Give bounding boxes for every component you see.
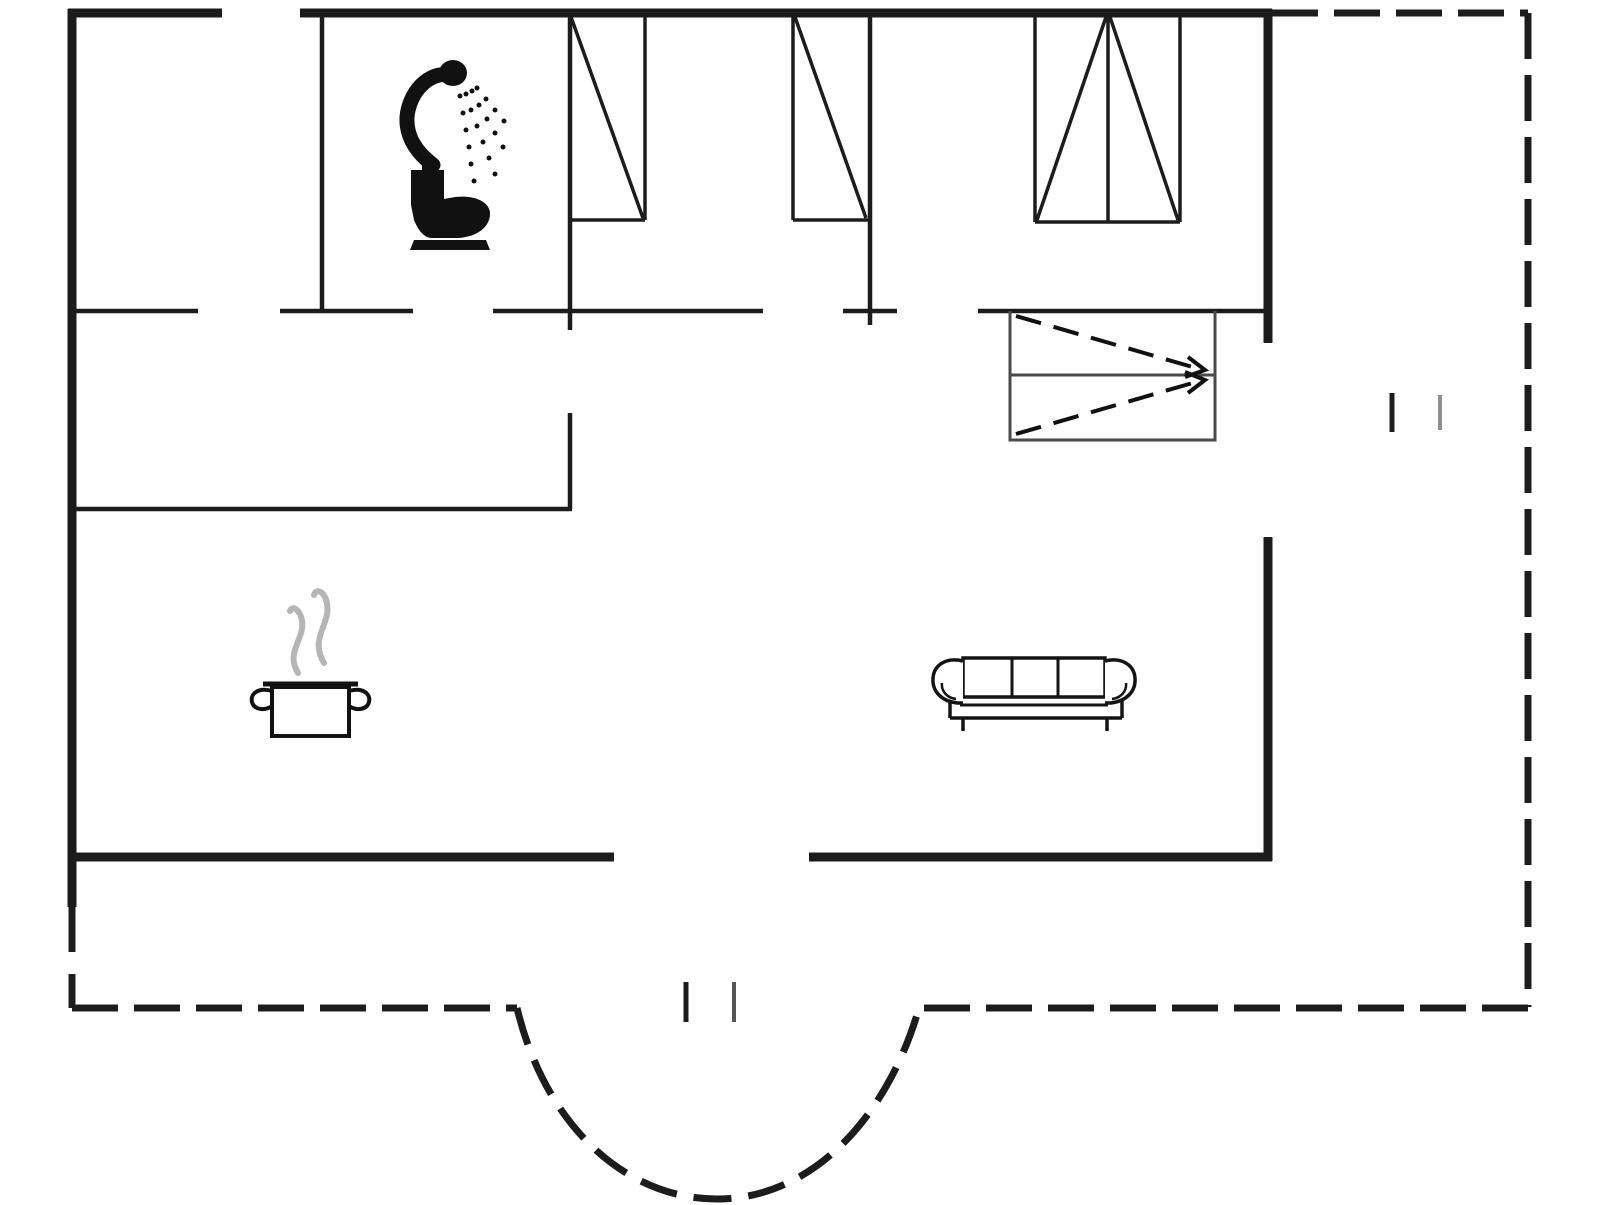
wardrobe-3: [1035, 15, 1180, 222]
shower-icon-spray-dots: [458, 86, 507, 184]
wardrobe-1: [569, 15, 645, 220]
wardrobe-2: [793, 15, 868, 220]
floorplan-svg: [0, 0, 1606, 1205]
closet-arrow-1: [1016, 316, 1196, 368]
steam-wisp-right: [314, 591, 327, 663]
bay-curve: [517, 1008, 919, 1199]
pot-handle-left: [252, 690, 272, 709]
pot-handle-right: [349, 690, 369, 709]
steam-wisp-left: [290, 608, 302, 673]
closet-arrow-2: [1016, 382, 1196, 434]
pot-body: [272, 687, 349, 736]
sofa-back: [963, 658, 1105, 697]
closet-outline: [1010, 311, 1215, 440]
toilet-icon: [410, 159, 490, 250]
floorplan-canvas: [0, 0, 1606, 1205]
shower-icon-hose: [407, 74, 453, 165]
